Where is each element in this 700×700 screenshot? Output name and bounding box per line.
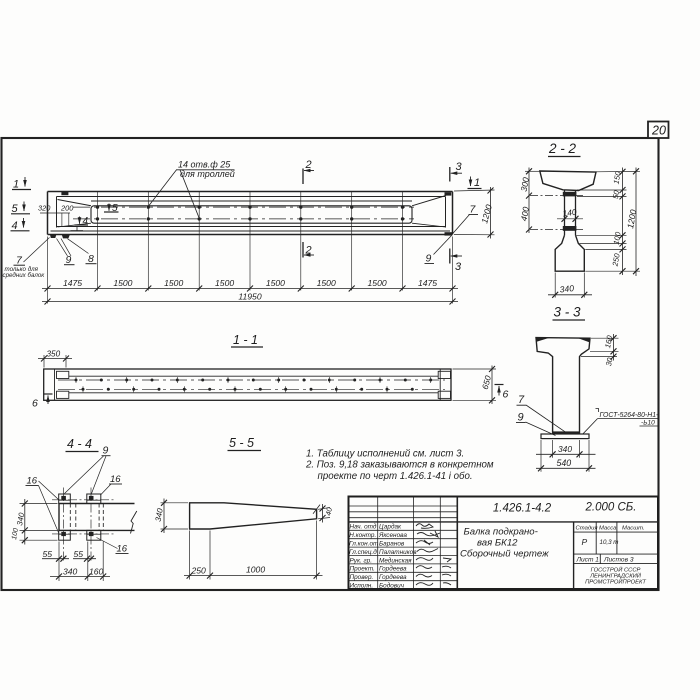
svg-text:Масшт.: Масшт. [622, 526, 645, 532]
svg-text:5: 5 [112, 203, 118, 214]
svg-text:для троллей: для троллей [180, 169, 235, 179]
svg-text:Н.контр.: Н.контр. [349, 532, 376, 539]
svg-text:140: 140 [562, 207, 578, 219]
svg-text:1000: 1000 [246, 565, 265, 575]
svg-text:1500: 1500 [317, 278, 336, 288]
svg-text:1 - 1: 1 - 1 [233, 333, 258, 347]
svg-text:вая БК12: вая БК12 [477, 538, 518, 549]
svg-text:1500: 1500 [164, 278, 183, 288]
svg-text:средних балок: средних балок [3, 272, 46, 279]
svg-text:2 - 2: 2 - 2 [548, 141, 577, 156]
svg-text:проекте по черт 1.426.1-41 і о: проекте по черт 1.426.1-41 і обо. [318, 471, 473, 482]
svg-text:1: 1 [13, 179, 19, 191]
svg-text:3: 3 [456, 161, 463, 173]
svg-text:6: 6 [503, 389, 509, 401]
svg-text:ГОСТ-5264-80-Н1-: ГОСТ-5264-80-Н1- [600, 412, 660, 419]
svg-text:Масса: Масса [599, 526, 617, 532]
svg-text:1: 1 [474, 177, 480, 189]
svg-text:9: 9 [518, 412, 524, 424]
svg-text:350: 350 [47, 350, 61, 359]
svg-text:16: 16 [117, 544, 128, 555]
svg-text:1475: 1475 [63, 278, 82, 288]
svg-text:Сборочный чертеж: Сборочный чертеж [460, 549, 549, 560]
svg-text:Гордеева: Гордеева [379, 573, 407, 581]
svg-text:Исполн.: Исполн. [350, 583, 374, 590]
svg-text:2. Поз. 9,18 заказываются в ко: 2. Поз. 9,18 заказываются в конкретном [305, 460, 494, 471]
svg-text:Баранов: Баранов [379, 541, 405, 548]
svg-text:Провер.: Провер. [350, 574, 374, 581]
svg-text:7: 7 [518, 394, 525, 406]
svg-text:Р: Р [582, 537, 588, 547]
svg-text:1. Таблицу исполнений см. лис: 1. Таблицу исполнений см. лист 3. [306, 449, 464, 460]
svg-text:2: 2 [305, 245, 312, 257]
svg-text:20: 20 [651, 124, 666, 138]
svg-text:-Ь10: -Ь10 [641, 420, 655, 427]
svg-text:9: 9 [426, 253, 432, 265]
svg-text:320: 320 [38, 204, 51, 213]
svg-text:Гл.спец.д: Гл.спец.д [349, 548, 377, 556]
svg-text:3: 3 [455, 261, 462, 273]
svg-text:4 - 4: 4 - 4 [67, 437, 92, 451]
svg-text:Нач. отд: Нач. отд [350, 523, 377, 531]
svg-text:340: 340 [63, 567, 78, 577]
svg-text:1475: 1475 [418, 278, 437, 288]
svg-text:16: 16 [110, 474, 121, 485]
svg-text:1500: 1500 [113, 278, 132, 288]
svg-text:ЛЕНИНГРАДСКИЙ: ЛЕНИНГРАДСКИЙ [589, 572, 642, 580]
svg-text:1500: 1500 [266, 278, 285, 288]
svg-text:Мединская: Мединская [379, 556, 412, 564]
svg-text:Цардак: Цардак [379, 523, 402, 531]
svg-text:5 - 5: 5 - 5 [229, 436, 254, 450]
svg-text:340: 340 [558, 444, 572, 454]
svg-text:250: 250 [191, 566, 207, 576]
svg-text:1.426.1-4.2: 1.426.1-4.2 [493, 503, 552, 515]
svg-text:1500: 1500 [215, 278, 234, 288]
svg-text:ПРОМСТРОЙПРОЕКТ: ПРОМСТРОЙПРОЕКТ [585, 578, 646, 586]
svg-text:Проект.: Проект. [350, 566, 375, 573]
svg-text:9: 9 [103, 445, 109, 457]
svg-text:2: 2 [305, 159, 312, 171]
svg-text:Яксенова: Яксенова [378, 532, 407, 539]
svg-text:16: 16 [27, 476, 38, 487]
svg-text:3 - 3: 3 - 3 [554, 305, 582, 320]
svg-text:Рук. гр.: Рук. гр. [350, 557, 373, 564]
svg-text:Гордеева: Гордеева [379, 565, 407, 573]
svg-text:2.000 СБ.: 2.000 СБ. [585, 502, 637, 514]
svg-text:160: 160 [89, 567, 104, 577]
svg-text:55: 55 [43, 549, 53, 559]
svg-text:Лист 1: Лист 1 [576, 557, 600, 564]
svg-text:ГОССТРОЙ СССР: ГОССТРОЙ СССР [591, 566, 641, 574]
svg-text:10,3 т: 10,3 т [600, 539, 619, 546]
svg-text:4: 4 [83, 216, 89, 227]
svg-text:Палатников: Палатников [379, 549, 417, 556]
svg-text:540: 540 [557, 458, 572, 468]
svg-text:Гл.кон.от: Гл.кон.от [349, 541, 379, 548]
svg-text:Балка подкрано-: Балка подкрано- [464, 527, 538, 538]
svg-text:200: 200 [60, 204, 74, 213]
svg-text:55: 55 [74, 549, 84, 559]
svg-text:6: 6 [32, 398, 38, 410]
svg-text:11950: 11950 [238, 292, 261, 302]
svg-text:14 отв.ф 25: 14 отв.ф 25 [178, 160, 231, 170]
svg-text:1500: 1500 [368, 278, 387, 288]
svg-text:Стадия: Стадия [576, 526, 599, 532]
svg-text:Бодович: Бодович [379, 582, 405, 590]
svg-text:Листов 3: Листов 3 [603, 557, 634, 564]
svg-text:340: 340 [559, 283, 575, 294]
